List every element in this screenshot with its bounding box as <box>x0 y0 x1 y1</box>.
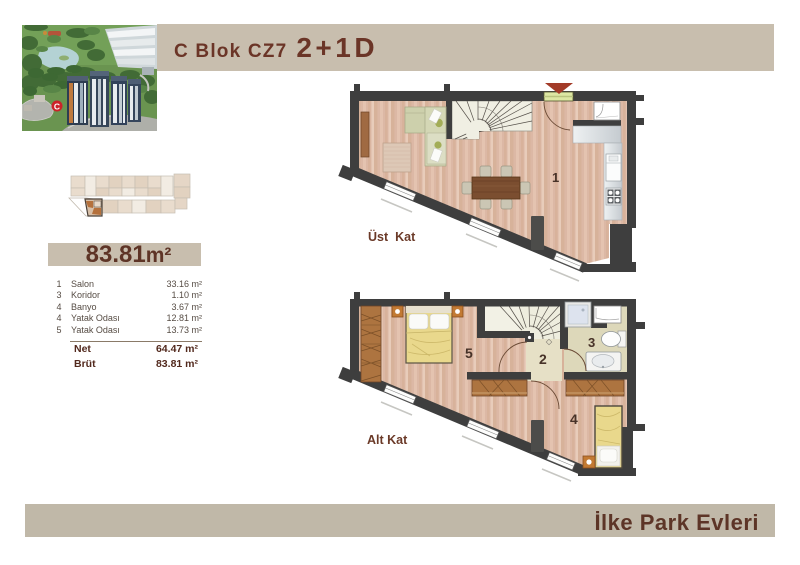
svg-text:Alt Kat: Alt Kat <box>367 433 408 447</box>
svg-text:Üst Kat: Üst Kat <box>368 229 416 244</box>
svg-text:C: C <box>54 102 60 112</box>
svg-text:4: 4 <box>570 411 578 427</box>
svg-text:5: 5 <box>465 345 473 361</box>
svg-text:2: 2 <box>539 351 547 367</box>
svg-text:3: 3 <box>588 335 595 350</box>
svg-text:1: 1 <box>552 170 559 185</box>
